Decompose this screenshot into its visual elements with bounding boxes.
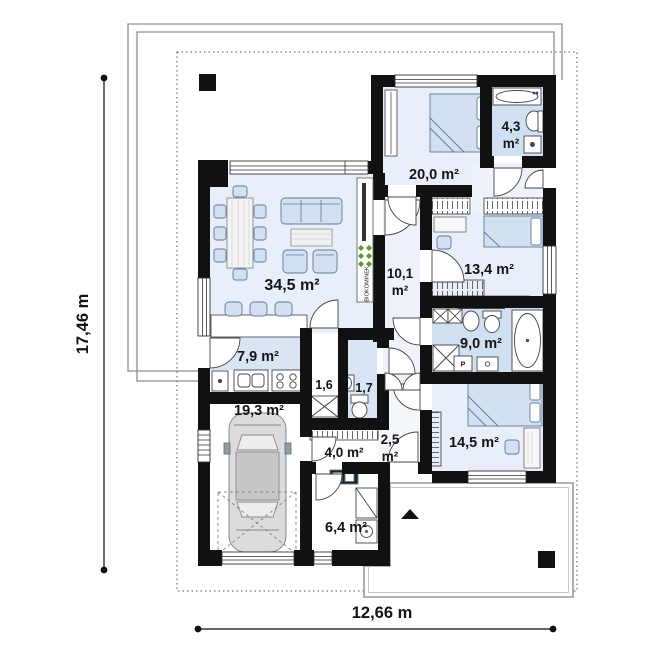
wall: [420, 410, 432, 471]
room-label-corridor-unit: m²: [392, 283, 409, 298]
wall: [432, 296, 543, 308]
sink-bowl: [238, 374, 250, 387]
kitchen-counter: [212, 370, 301, 391]
toilet: [352, 402, 367, 418]
garage-door: [222, 552, 294, 564]
bio-fireplace: BIOKOMINEK: [357, 178, 373, 302]
wall: [332, 550, 390, 566]
wall: [338, 340, 348, 418]
chimney-top: [199, 74, 216, 91]
room-label-living: 34,5 m²: [264, 277, 319, 294]
wall: [307, 328, 310, 340]
room-label-pantry: 1,6: [315, 378, 332, 392]
wall: [198, 368, 210, 430]
wall: [373, 173, 385, 200]
wall: [300, 461, 312, 550]
window: [395, 75, 477, 87]
wall: [526, 471, 556, 483]
floor-plan-drawing: 17,46 m 12,66 m: [0, 0, 660, 660]
room-label-bath-small-unit: m²: [503, 136, 520, 151]
wall: [294, 550, 314, 566]
sink-bowl: [252, 374, 264, 387]
room-label-kitchen: 7,9 m²: [237, 349, 279, 365]
garage-vent: [198, 430, 210, 462]
room-label-vestibule-unit: m²: [382, 449, 399, 464]
room-label-garage: 19,3 m²: [234, 403, 284, 419]
fireplace-label: BIOKOMINEK: [365, 266, 371, 302]
wall: [198, 173, 210, 278]
room-label-bedroom-3: 14,5 m²: [449, 435, 499, 451]
wall: [371, 75, 383, 174]
wall: [377, 340, 389, 348]
room-label-bedroom-main: 20,0 m²: [409, 167, 459, 183]
floor-corridor-passage: [472, 198, 484, 216]
wall: [480, 87, 492, 156]
room-label-wc: 1,7: [355, 381, 372, 395]
chair: [437, 236, 451, 249]
wall: [420, 372, 543, 384]
wall: [420, 197, 432, 250]
terrace: [364, 483, 573, 597]
washer-label: P: [461, 362, 466, 369]
height-dimension-label: 17,46 m: [74, 294, 92, 355]
wall: [418, 462, 432, 474]
wall: [543, 87, 556, 168]
wall: [371, 75, 395, 87]
room-label-bathroom: 9,0 m²: [460, 336, 502, 352]
pillow: [531, 218, 541, 245]
window: [543, 246, 556, 294]
width-dimension-label: 12,66 m: [352, 604, 413, 622]
window: [468, 471, 526, 483]
room-label-utility: 6,4 m²: [325, 520, 367, 536]
room-label-hall: 4,0 m²: [324, 445, 364, 460]
room-label-vestibule: 2,5: [381, 432, 400, 447]
desk: [434, 217, 466, 232]
wall: [480, 156, 494, 168]
room-label-bath-small: 4,3: [502, 119, 521, 134]
wall: [373, 235, 385, 342]
wall: [522, 156, 543, 168]
wall: [198, 462, 210, 550]
room-label-corridor: 10,1: [387, 266, 414, 281]
wall: [198, 550, 222, 566]
wall: [420, 282, 432, 318]
wall: [342, 462, 378, 474]
wall: [300, 462, 316, 474]
window: [198, 278, 210, 336]
window: [314, 552, 332, 564]
chair: [505, 440, 519, 454]
wall: [416, 185, 472, 197]
wall: [432, 471, 468, 483]
washbasin: [463, 311, 479, 331]
wall: [338, 328, 394, 340]
pillow: [530, 403, 540, 422]
tv-panel: [362, 183, 366, 241]
floor-plan-page: 17,46 m 12,66 m: [0, 0, 660, 660]
room-label-bedroom-2: 13,4 m²: [464, 262, 514, 278]
wall: [477, 75, 556, 87]
toilet: [485, 316, 500, 333]
wall: [300, 418, 389, 430]
wall: [543, 188, 556, 246]
wall: [543, 294, 556, 483]
stove: [272, 370, 301, 391]
window: [230, 161, 368, 174]
car: [224, 413, 291, 552]
cabinet: [477, 357, 498, 371]
chimney-bottom: [538, 551, 555, 568]
